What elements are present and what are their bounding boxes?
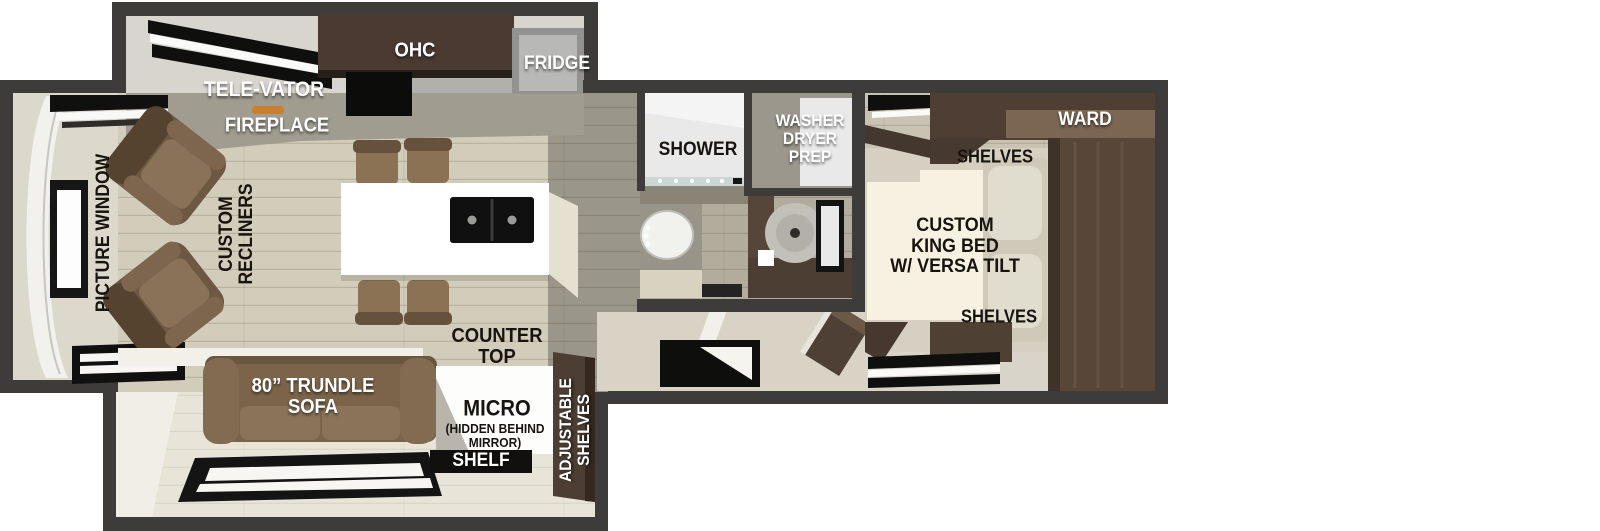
wardrobe-column	[1048, 138, 1155, 391]
sink-oval-icon	[641, 211, 693, 259]
floorplan-drawing	[0, 0, 1600, 531]
island-counter	[341, 183, 578, 298]
pillow-icon	[988, 166, 1042, 240]
bedroom	[865, 93, 1155, 391]
shelf-bar	[430, 450, 532, 473]
trundle-sofa	[203, 356, 437, 444]
dining-chair	[404, 280, 452, 325]
tv-icon	[346, 72, 412, 116]
dining-chair	[404, 138, 452, 183]
entry-steps-icon	[660, 340, 760, 387]
dining-chair	[353, 140, 401, 185]
ohc-cabinet	[318, 14, 514, 74]
washer-dryer-room	[752, 93, 852, 188]
floorplan: TELE-VATOR OHC FRIDGE FIREPLACE PICTURE …	[0, 0, 1600, 531]
picture-window-icon	[50, 180, 88, 298]
micro-cabinet	[436, 366, 553, 454]
rug-icon	[178, 452, 442, 502]
king-bed	[867, 158, 1047, 342]
sink-icon	[450, 197, 534, 243]
bath-section	[640, 93, 871, 387]
bedroom-window-bottom-icon	[868, 352, 1000, 388]
pillow-icon	[988, 254, 1042, 328]
shower-room	[645, 93, 744, 186]
fireplace-glow-icon	[252, 106, 284, 114]
dining-chair	[355, 280, 403, 325]
adjustable-shelves-cabinet	[553, 352, 595, 502]
